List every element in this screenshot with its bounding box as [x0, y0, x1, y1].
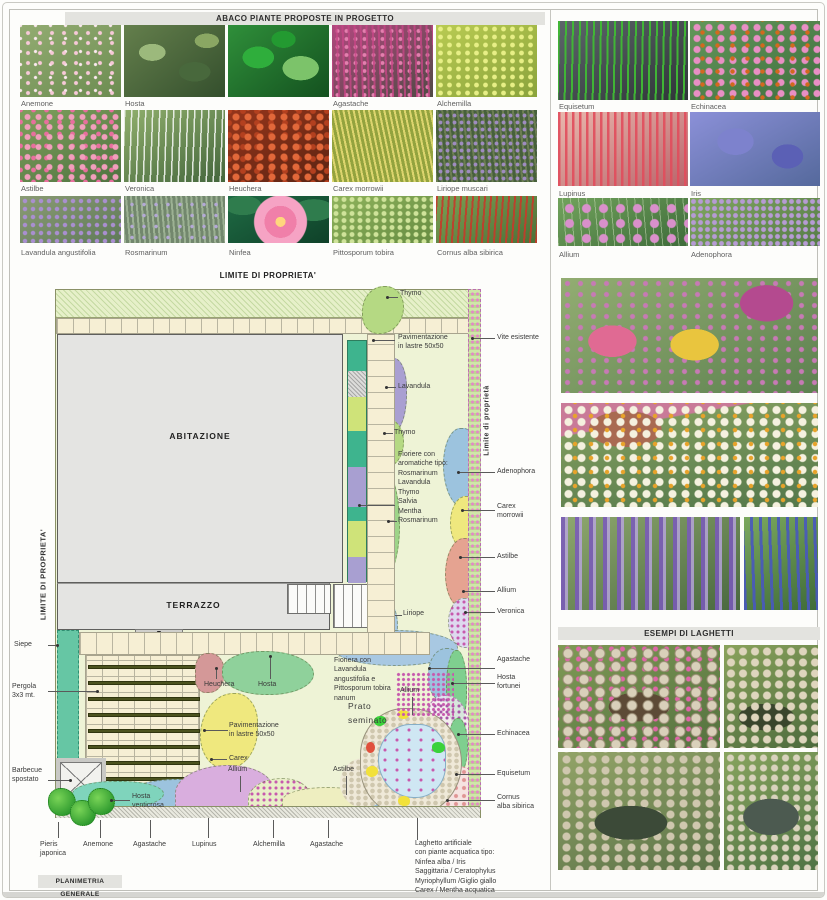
callout-allium: Allium [497, 586, 516, 595]
photo-veronica [124, 110, 225, 182]
leader-line [212, 759, 227, 760]
plan-label-allium-pond: Allium [400, 686, 419, 695]
plan-label-siepe: Siepe [14, 640, 32, 649]
caption-ninfea: Ninfea [229, 248, 251, 257]
planter-segment [348, 507, 366, 521]
plan-label-rosmarinum: Rosmarinum [398, 516, 438, 525]
plan-label-pavimentazione-2: Pavimentazione in lastre 50x50 [229, 721, 279, 740]
leader-dot [386, 296, 389, 299]
caption-cornus-alba: Cornus alba sibirica [437, 248, 503, 257]
leader-dot [110, 799, 113, 802]
leader-dot [358, 504, 361, 507]
photo-alchemilla [436, 25, 537, 97]
leader-line [205, 730, 228, 731]
photo-rosmarinum [124, 196, 225, 243]
leader-dot [387, 520, 390, 523]
plan-label-anemone: Anemone [83, 840, 113, 849]
leader-line [417, 818, 418, 840]
callout-astilbe: Astilbe [497, 552, 518, 561]
leader-line [461, 557, 495, 558]
pond-plant-patch-yellow-3 [398, 796, 410, 806]
leader-dot [464, 611, 467, 614]
leader-line [273, 820, 274, 838]
caption-anemone: Anemone [21, 99, 53, 108]
boundary-left-label: LIMITE DI PROPRIETA' [39, 515, 48, 635]
abaco-header: ABACO PIANTE PROPOSTE IN PROGETTO [65, 12, 545, 25]
plan-label-alchemilla: Alchemilla [253, 840, 285, 849]
callout-vite-esistente: Vite esistente [497, 333, 539, 342]
column-divider [550, 10, 551, 890]
leader-line [150, 820, 151, 838]
leader-line [459, 734, 495, 735]
pergola-beam [88, 729, 200, 733]
plan-label-heuchera: Heuchera [204, 680, 234, 689]
photo-ninfea [228, 196, 329, 243]
photo-delphinium-wide [561, 517, 740, 610]
callout-echinacea: Echinacea [497, 729, 530, 738]
plan-label-barbecue: Barbecue spostato [12, 766, 42, 785]
planter-segment [348, 557, 366, 583]
leader-dot [56, 644, 59, 647]
callout-cornus: Cornus alba sibirica [497, 793, 534, 812]
planter-segment [348, 397, 366, 431]
plan-label-pergola: Pergola 3x3 mt. [12, 682, 36, 701]
pergola-beam [88, 745, 200, 749]
pergola-beam [88, 713, 200, 717]
planter-segment [348, 521, 366, 557]
laghetti-header: ESEMPI DI LAGHETTI [558, 627, 820, 640]
photo-perennial-border-1 [561, 278, 818, 393]
paving-path-east [367, 334, 395, 650]
photo-pond-natural [724, 752, 818, 870]
caption-astilbe: Astilbe [21, 184, 44, 193]
boundary-top-label: LIMITE DI PROPRIETA' [55, 271, 481, 282]
pergola-beam [88, 681, 200, 685]
plan-label-laghetto: Laghetto artificiale con piante acquatic… [415, 839, 496, 896]
leader-dot [462, 590, 465, 593]
leader-line [389, 297, 398, 298]
leader-dot [385, 386, 388, 389]
caption-agastache: Agastache [333, 99, 368, 108]
leader-line [328, 820, 329, 838]
caption-alchemilla: Alchemilla [437, 99, 471, 108]
caption-iris: Iris [691, 189, 701, 198]
photo-anemone [20, 25, 121, 97]
stairs-terrace [287, 584, 331, 614]
leader-dot [459, 556, 462, 559]
caption-rosmarinum: Rosmarinum [125, 248, 168, 257]
leader-line [430, 668, 495, 669]
photo-lavandula [20, 196, 121, 243]
callout-agastache: Agastache [497, 655, 530, 664]
leader-line [100, 820, 101, 838]
leader-line [58, 822, 59, 838]
pergola-beam [88, 665, 200, 669]
leader-line [412, 697, 413, 715]
caption-equisetum: Equisetum [559, 102, 594, 111]
photo-iris [690, 112, 820, 186]
caption-liriope-muscari: Liriope muscari [437, 184, 488, 193]
callout-adenophora: Adenophora [497, 467, 535, 476]
leader-dot [461, 509, 464, 512]
caption-veronica: Veronica [125, 184, 154, 193]
pond-plant-patch-green-2 [432, 742, 445, 753]
leader-line [473, 338, 495, 339]
plan-label-fioriere-aromatiche: Fioriere con aromatiche tipo: Rosmarinum… [398, 450, 448, 516]
plan-label-lupinus: Lupinus [192, 840, 217, 849]
leader-dot [372, 339, 375, 342]
photo-hosta-dark [124, 25, 225, 97]
leader-line [395, 615, 402, 616]
photo-allium [558, 198, 688, 246]
photo-carex-morrowii [332, 110, 433, 182]
plan-label-agastache-2: Agastache [310, 840, 343, 849]
plan-label-lavandula: Lavandula [398, 382, 430, 391]
photo-astilbe [20, 110, 121, 182]
caption-lupinus: Lupinus [559, 189, 585, 198]
callout-carex-morrowii: Carex morrowii [497, 502, 523, 521]
leader-dot [383, 432, 386, 435]
leader-line [463, 510, 495, 511]
photo-adenophora [690, 198, 820, 246]
callout-equisetum: Equisetum [497, 769, 530, 778]
leader-dot [428, 667, 431, 670]
caption-echinacea: Echinacea [691, 102, 726, 111]
leader-dot [203, 729, 206, 732]
pergola-beam [88, 761, 200, 765]
leader-dot [269, 655, 272, 658]
pond-water [378, 724, 446, 798]
leader-dot [457, 733, 460, 736]
leader-line [216, 670, 217, 679]
plan-label-carex: Carex [229, 754, 248, 763]
boundary-right-label: Limite di proprietà [484, 381, 491, 461]
pergola-beam [88, 697, 200, 701]
caption-lavandula: Lavandula angustifolia [21, 248, 96, 257]
planter-segment [348, 341, 366, 371]
plan-label-pavimentazione-1: Pavimentazione in lastre 50x50 [398, 333, 448, 352]
leader-line [466, 612, 495, 613]
caption-pittosporum: Pittosporum tobira [333, 248, 394, 257]
leader-line [457, 774, 495, 775]
photo-cornus-alba [436, 196, 537, 243]
leader-line [240, 776, 241, 792]
planter-column [347, 340, 367, 582]
planter-segment [348, 431, 366, 467]
planter-segment [348, 467, 366, 507]
photo-liriope-muscari [436, 110, 537, 182]
caption-hosta: Hosta [125, 99, 145, 108]
leader-dot [451, 682, 454, 685]
building-abitazione: ABITAZIONE [57, 334, 343, 583]
plan-label-allium-bottom: Allium [228, 765, 247, 774]
leader-dot [457, 471, 460, 474]
plan-label-agastache-1: Agastache [133, 840, 166, 849]
photo-hosta-bright [228, 25, 329, 97]
leader-line [48, 780, 69, 781]
plan-label-astilbe-pond: Astilbe [333, 765, 354, 774]
bottom-edge [3, 892, 824, 897]
planimetria-footer: PLANIMETRIA GENERALE [38, 875, 122, 888]
leader-dot [471, 337, 474, 340]
leader-line [453, 683, 495, 684]
caption-adenophora: Adenophora [691, 250, 732, 259]
leader-dot [210, 758, 213, 761]
leader-dot [69, 779, 72, 782]
leader-line [389, 521, 397, 522]
plan-label-thymo-1: Thymo [400, 289, 421, 298]
leader-dot [446, 799, 449, 802]
photo-echinacea [690, 21, 820, 100]
pond-plant-patch-red [366, 742, 375, 753]
plan-label-pieris: Pieris japonica [40, 840, 66, 859]
photo-pittosporum [332, 196, 433, 243]
leader-dot [215, 667, 218, 670]
photo-delphinium-narrow [744, 517, 818, 610]
leader-line [448, 800, 495, 801]
plan-label-hosta-venticrosa: Hosta venticrosa [132, 792, 164, 811]
photo-equisetum [558, 21, 688, 100]
plan-label-prato-seminato: Prato seminato [348, 700, 387, 727]
photo-pond-waterfall [558, 645, 720, 748]
building-label: ABITAZIONE [58, 431, 342, 442]
callout-hosta-fortunei: Hosta fortunei [497, 673, 520, 692]
vine-strip-vite [468, 289, 481, 810]
leader-dot [455, 773, 458, 776]
callout-veronica: Veronica [497, 607, 524, 616]
photo-lupinus [558, 112, 688, 186]
photo-pond-rockery [558, 752, 720, 870]
leader-line [208, 818, 209, 838]
leader-line [48, 691, 96, 692]
pergola-paving [85, 655, 200, 790]
plan-label-thymo-2: Thymo [394, 428, 415, 437]
plan-label-liriope: Liriope [403, 609, 424, 618]
leader-line [464, 591, 495, 592]
photo-heuchera [228, 110, 329, 182]
photo-pond-stream [724, 645, 818, 748]
south-boundary-hatch [56, 806, 480, 818]
leader-dot [96, 690, 99, 693]
garden-design-board: ABACO PIANTE PROPOSTE IN PROGETTO Anemon… [0, 0, 827, 900]
photo-agastache [332, 25, 433, 97]
leader-line [360, 505, 395, 506]
top-paving-row [56, 318, 480, 334]
leader-line [373, 340, 395, 341]
caption-allium: Allium [559, 250, 579, 259]
caption-heuchera: Heuchera [229, 184, 262, 193]
leader-line [270, 658, 271, 679]
leader-line [346, 776, 347, 795]
plan-label-fioriera-lavandula: Fioriera con Lavandula angustifolia e Pi… [334, 656, 391, 703]
caption-carex-morrowii: Carex morrowii [333, 184, 383, 193]
leader-line [459, 472, 495, 473]
leader-line [112, 800, 130, 801]
photo-perennial-border-2 [561, 403, 818, 507]
planter-segment [348, 371, 366, 397]
plan-label-hosta: Hosta [258, 680, 276, 689]
